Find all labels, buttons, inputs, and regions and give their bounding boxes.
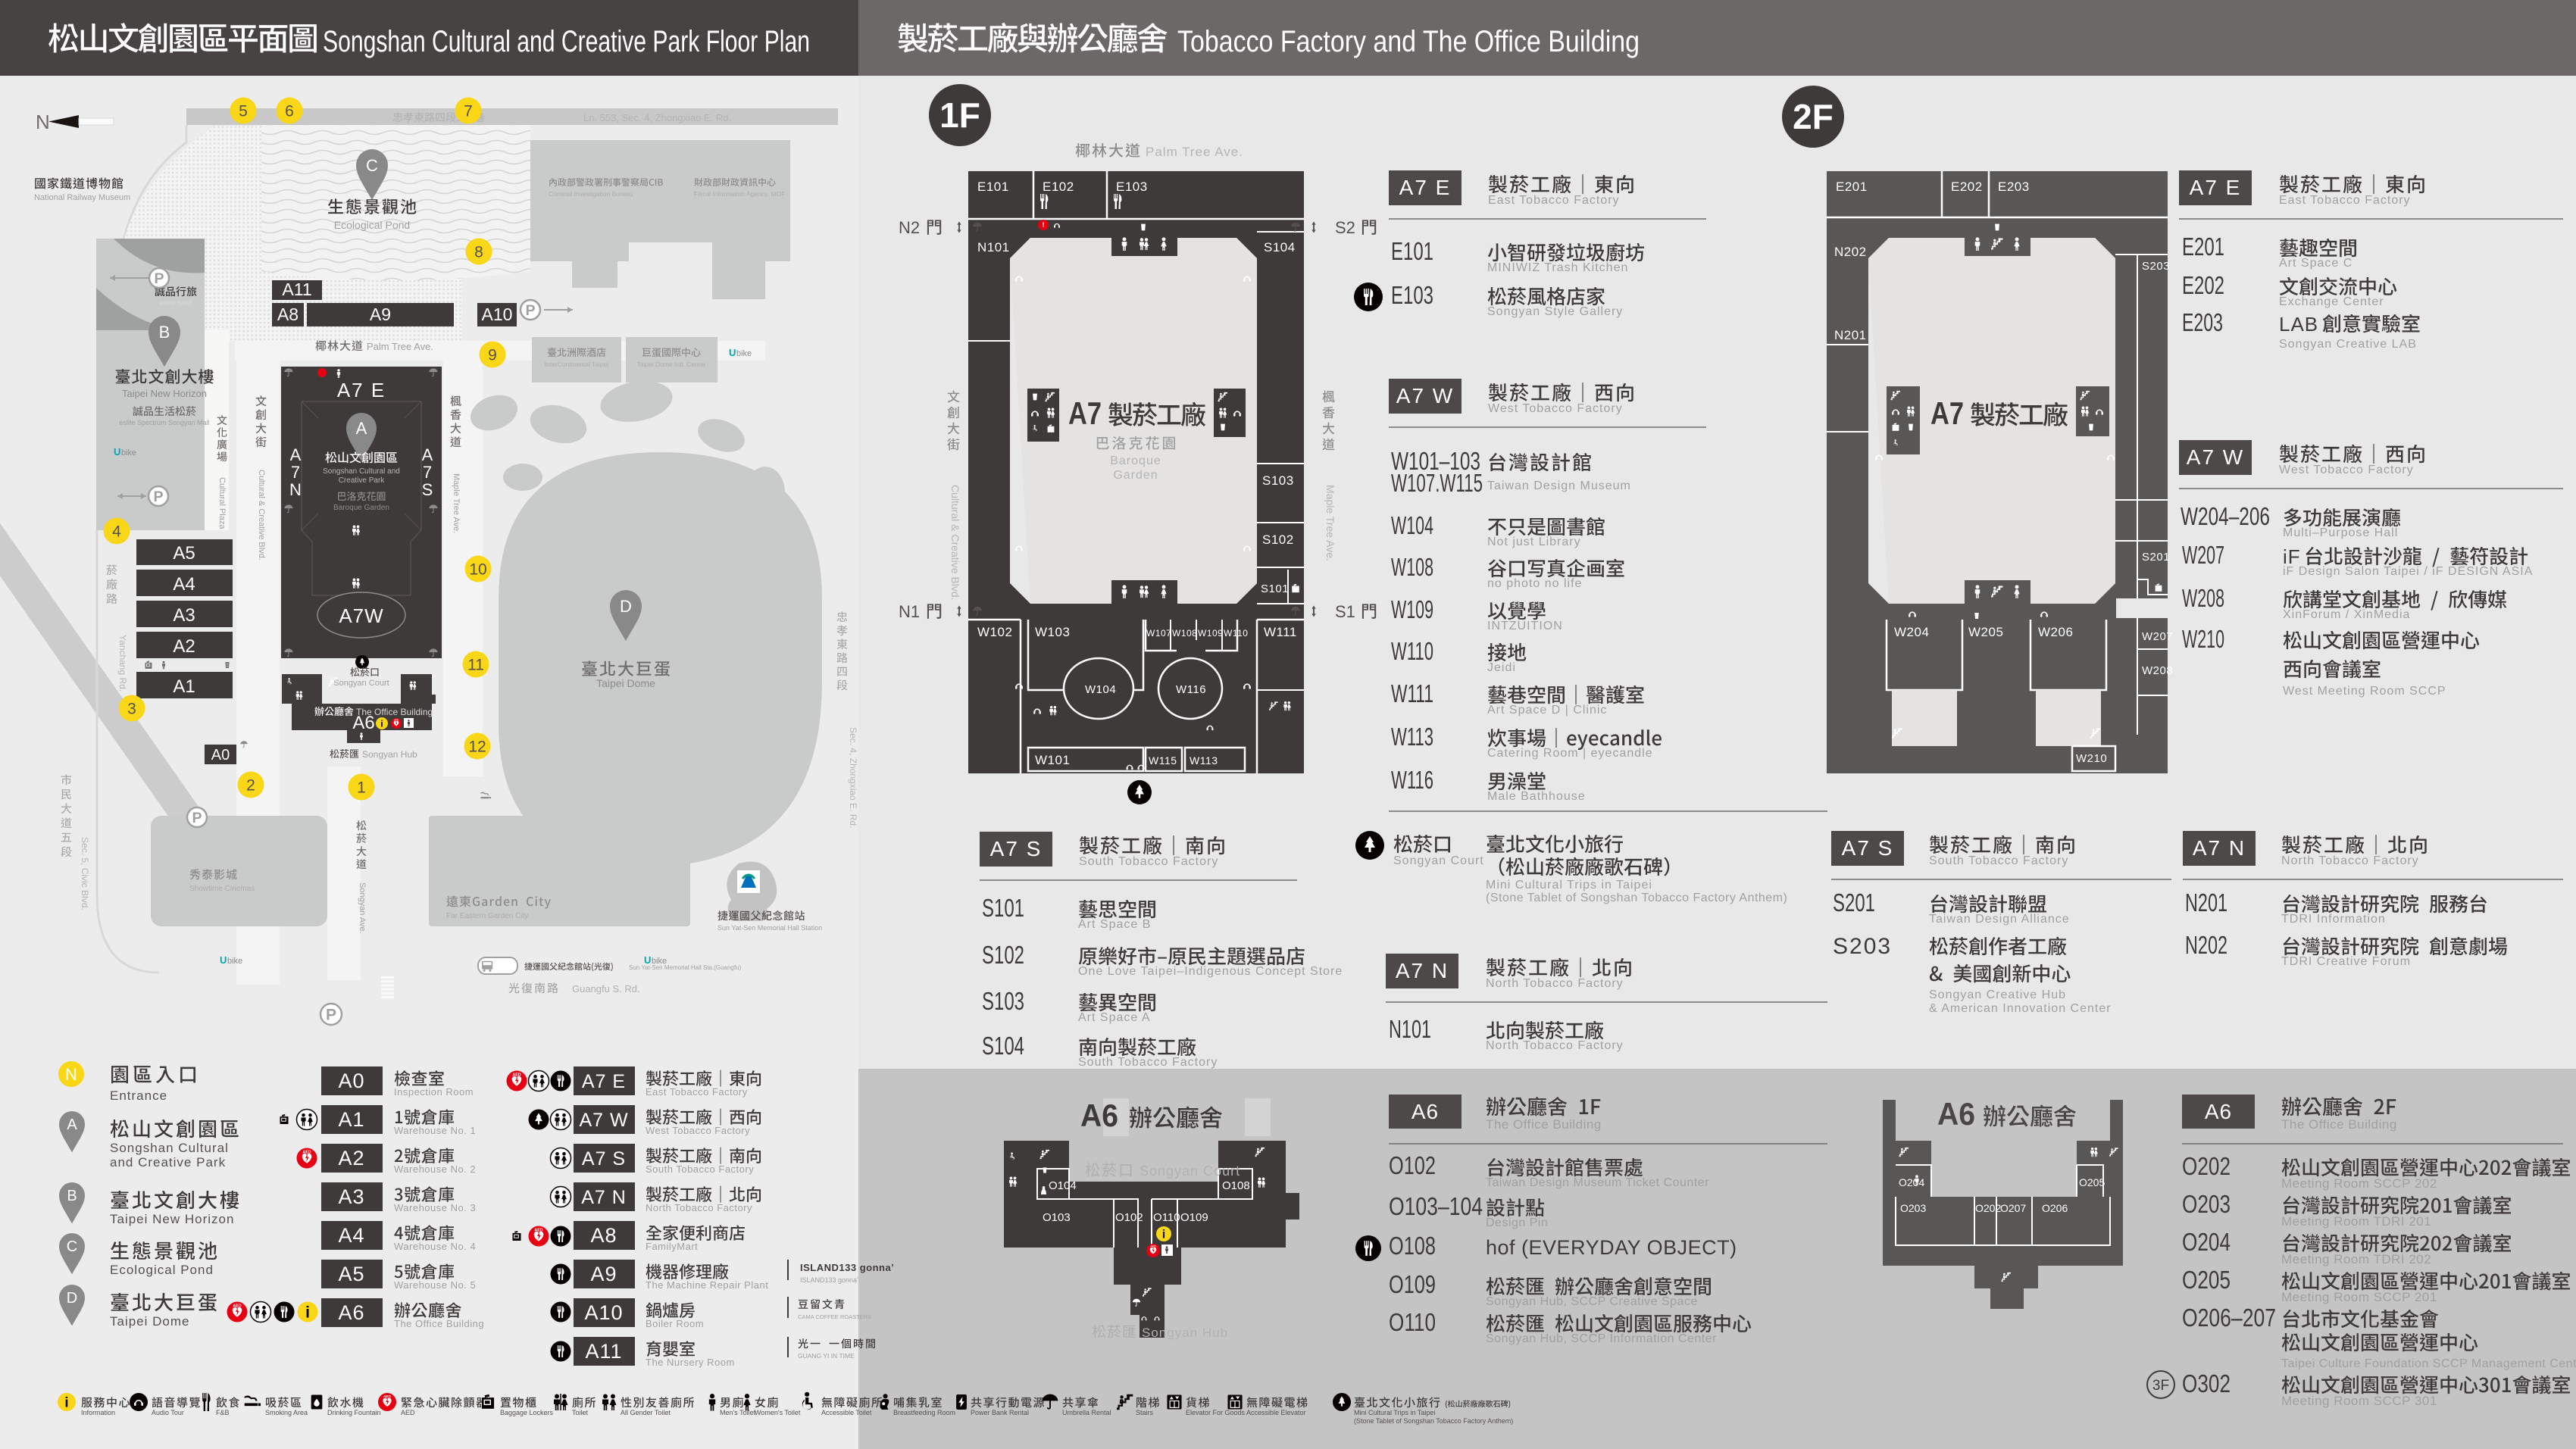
svg-text:S2: S2: [1335, 218, 1355, 237]
svg-text:Multi–Purpose Hall: Multi–Purpose Hall: [2283, 526, 2398, 539]
svg-text:Ln. 553, Sec. 4, Zhongxiao E.: Ln. 553, Sec. 4, Zhongxiao E. Rd.: [583, 112, 731, 123]
svg-text:E202: E202: [2182, 271, 2224, 299]
svg-text:& American Innovation Center: & American Innovation Center: [1929, 1002, 2112, 1015]
svg-text:W109: W109: [1391, 595, 1433, 623]
svg-text:W207: W207: [2182, 541, 2224, 569]
svg-text:Meeting Room SCCP 301: Meeting Room SCCP 301: [2281, 1394, 2437, 1408]
svg-text:8: 8: [474, 244, 483, 261]
svg-text:9: 9: [488, 347, 497, 364]
svg-text:Sec. 5, Civic Blvd.: Sec. 5, Civic Blvd.: [80, 837, 90, 910]
svg-text:Maple Tree Ave.: Maple Tree Ave.: [1324, 485, 1336, 561]
svg-text:U: U: [220, 954, 227, 966]
svg-text:Taipei New Horizon: Taipei New Horizon: [110, 1212, 234, 1226]
svg-text:6: 6: [285, 103, 294, 120]
svg-text:ISLAND133 gonnaʼ: ISLAND133 gonnaʼ: [800, 1262, 894, 1273]
svg-text:Songyan Hub, SCCP Information: Songyan Hub, SCCP Information Center: [1486, 1332, 1717, 1345]
svg-text:1F: 1F: [939, 95, 980, 135]
svg-text:W204–206: W204–206: [2181, 502, 2270, 530]
svg-text:E203: E203: [1998, 180, 2030, 194]
svg-text:E203: E203: [2182, 308, 2223, 336]
svg-text:Taipei Dome: Taipei Dome: [596, 677, 655, 689]
svg-text:(Stone Tablet of Songshan Toba: (Stone Tablet of Songshan Tobacco Factor…: [1354, 1417, 1513, 1425]
svg-text:Songyan Creative LAB: Songyan Creative LAB: [2279, 338, 2417, 351]
svg-text:All Gender Toilet: All Gender Toilet: [621, 1409, 671, 1416]
svg-text:ISLAND133 gonnaʼ: ISLAND133 gonnaʼ: [800, 1276, 858, 1284]
svg-text:Cultural & Creative Blvd.: Cultural & Creative Blvd.: [257, 470, 266, 561]
svg-text:Criminal Investigation Bureau: Criminal Investigation Bureau: [549, 190, 633, 198]
svg-text:Mini Cultural Trips in Taipei: Mini Cultural Trips in Taipei: [1486, 879, 1652, 892]
svg-text:O104: O104: [1049, 1179, 1077, 1192]
svg-text:O203: O203: [1900, 1202, 1926, 1214]
svg-text:W108: W108: [1391, 553, 1433, 581]
svg-text:W109: W109: [1198, 628, 1223, 639]
svg-text:A9: A9: [590, 1263, 617, 1285]
svg-text:Songshan Cultural and Creative: Songshan Cultural and Creative Park Floo…: [323, 25, 810, 58]
svg-text:South Tobacco Factory: South Tobacco Factory: [646, 1163, 754, 1175]
svg-text:W102: W102: [977, 625, 1012, 639]
svg-text:AED: AED: [383, 1394, 392, 1399]
svg-text:eslite Spectrum Songyan Mall: eslite Spectrum Songyan Mall: [119, 419, 209, 426]
svg-text:12: 12: [468, 739, 486, 756]
svg-text:Warehouse No. 4: Warehouse No. 4: [394, 1241, 476, 1252]
svg-text:O202: O202: [1975, 1202, 2001, 1214]
svg-text:B: B: [67, 1188, 77, 1204]
svg-text:Songyan Creative Hub: Songyan Creative Hub: [1929, 988, 2066, 1001]
svg-text:A5: A5: [173, 543, 195, 564]
svg-text:i: i: [305, 1304, 310, 1321]
svg-text:Breastfeeding Room: Breastfeeding Room: [893, 1409, 955, 1416]
svg-text:Warehouse No. 5: Warehouse No. 5: [394, 1279, 476, 1291]
svg-text:W113: W113: [1391, 723, 1433, 751]
svg-text:INTZUITION: INTZUITION: [1487, 620, 1563, 632]
svg-text:Guangfu S. Rd.: Guangfu S. Rd.: [572, 983, 640, 995]
svg-text:E103: E103: [1116, 180, 1148, 194]
svg-text:!: !: [1043, 221, 1045, 229]
svg-text:W107.W115: W107.W115: [1391, 469, 1483, 497]
svg-text:Creative Park: Creative Park: [339, 476, 386, 485]
svg-text:N101: N101: [1389, 1015, 1431, 1043]
svg-text:A8: A8: [590, 1224, 617, 1247]
svg-text:AED: AED: [401, 1409, 415, 1416]
svg-text:A7 W: A7 W: [2187, 445, 2244, 469]
svg-text:Yanchang Rd.: Yanchang Rd.: [117, 635, 128, 692]
svg-text:A: A: [290, 445, 302, 464]
svg-text:Toilet: Toilet: [572, 1409, 589, 1416]
svg-text:F&B: F&B: [216, 1409, 230, 1416]
svg-text:South Tobacco Factory: South Tobacco Factory: [1929, 854, 2068, 867]
svg-text:Men's Toilet: Men's Toilet: [720, 1409, 756, 1416]
svg-text:W103: W103: [1035, 625, 1070, 639]
svg-text:11: 11: [467, 657, 484, 674]
svg-text:iF Design Salon Taipei / iF DE: iF Design Salon Taipei / iF DESIGN ASIA: [2283, 565, 2533, 578]
svg-text:S101: S101: [1261, 582, 1289, 595]
svg-text:Taipei New Horizon: Taipei New Horizon: [122, 388, 207, 399]
svg-text:N202: N202: [2185, 931, 2227, 959]
svg-text:XinForum / XinMedia: XinForum / XinMedia: [2283, 608, 2410, 621]
svg-text:P: P: [326, 1006, 336, 1023]
svg-text:P: P: [153, 489, 163, 505]
svg-text:W108: W108: [1172, 628, 1197, 639]
svg-text:N202: N202: [1834, 245, 1867, 259]
svg-text:The Machine Repair Plant: The Machine Repair Plant: [646, 1279, 768, 1291]
svg-text:AED: AED: [302, 1150, 311, 1154]
svg-text:N201: N201: [2185, 888, 2227, 917]
svg-text:A: A: [356, 419, 367, 438]
svg-text:4: 4: [112, 523, 121, 541]
svg-text:Meeting Room SCCP 202: Meeting Room SCCP 202: [2281, 1176, 2437, 1191]
svg-text:LAB: LAB: [2279, 313, 2318, 336]
svg-text:A7 W: A7 W: [579, 1110, 628, 1131]
svg-text:E103: E103: [1391, 281, 1433, 309]
svg-text:S104: S104: [1264, 240, 1296, 255]
svg-text:Women's Toilet: Women's Toilet: [755, 1409, 801, 1416]
svg-text:O205: O205: [2182, 1266, 2231, 1294]
svg-text:Tobacco Factory and The Office: Tobacco Factory and The Office Building: [1177, 25, 1640, 58]
svg-text:W206: W206: [2038, 625, 2073, 639]
svg-text:Songyan Court: Songyan Court: [1140, 1163, 1240, 1179]
svg-text:Taipei Dome: Taipei Dome: [110, 1314, 190, 1329]
svg-text:O108: O108: [1222, 1179, 1250, 1192]
svg-text:E101: E101: [1391, 237, 1433, 265]
svg-text:Warehouse No. 1: Warehouse No. 1: [394, 1125, 476, 1136]
svg-text:Baroque: Baroque: [1110, 454, 1161, 467]
svg-text:A2: A2: [173, 636, 195, 657]
svg-text:North Tobacco Factory: North Tobacco Factory: [1486, 1039, 1624, 1052]
svg-text:InterContinental Taipei: InterContinental Taipei: [545, 361, 609, 368]
svg-text:A6: A6: [2205, 1100, 2232, 1123]
svg-text:W101: W101: [1035, 753, 1070, 767]
svg-text:O102: O102: [1115, 1211, 1143, 1224]
svg-text:W210: W210: [2076, 752, 2107, 765]
svg-text:TDRI Information: TDRI Information: [2281, 913, 2386, 926]
svg-text:O207: O207: [2000, 1202, 2026, 1214]
svg-text:Meeting Room TDRI 202: Meeting Room TDRI 202: [2281, 1252, 2431, 1266]
svg-text:10: 10: [469, 561, 486, 579]
svg-text:O109: O109: [1389, 1270, 1436, 1298]
svg-text:Taipei Dome Intl. Center: Taipei Dome Intl. Center: [636, 361, 705, 368]
svg-text:Sec. 4, Zhongxiao E. Rd.: Sec. 4, Zhongxiao E. Rd.: [848, 727, 858, 828]
svg-text:S203: S203: [2142, 260, 2170, 273]
svg-text:Taiwan Design Alliance: Taiwan Design Alliance: [1929, 913, 2070, 926]
svg-text:A7 S: A7 S: [1842, 836, 1894, 860]
svg-text:A0: A0: [211, 747, 230, 764]
svg-text:A3: A3: [173, 605, 195, 626]
svg-text:no photo no life: no photo no life: [1487, 577, 1582, 590]
svg-text:Garden: Garden: [1113, 469, 1158, 482]
svg-text:E201: E201: [1836, 180, 1868, 194]
svg-text:W208: W208: [2182, 584, 2224, 612]
svg-text:A11: A11: [282, 279, 311, 299]
svg-text:E102: E102: [1043, 180, 1074, 194]
svg-text:The Office Building: The Office Building: [2281, 1117, 2397, 1132]
svg-text:S102: S102: [982, 941, 1024, 969]
svg-text:Songyan Hub: Songyan Hub: [1142, 1326, 1228, 1340]
svg-text:A10: A10: [584, 1301, 623, 1324]
svg-text:AED: AED: [233, 1304, 241, 1308]
svg-text:O202: O202: [2182, 1152, 2231, 1180]
svg-text:A7 E: A7 E: [2190, 176, 2242, 199]
svg-text:W110: W110: [1224, 628, 1248, 639]
svg-text:hof (EVERYDAY OBJECT): hof (EVERYDAY OBJECT): [1486, 1236, 1737, 1259]
svg-text:A7 N: A7 N: [2193, 836, 2246, 860]
svg-text:Far Eastern Garden City: Far Eastern Garden City: [446, 912, 528, 920]
svg-text:U: U: [644, 954, 651, 966]
svg-text:P: P: [525, 302, 535, 319]
svg-text:West Tobacco Factory: West Tobacco Factory: [1488, 402, 1623, 415]
svg-text:Taiwan Design Museum: Taiwan Design Museum: [1487, 479, 1631, 492]
svg-text:West Meeting Room SCCP: West Meeting Room SCCP: [2283, 685, 2446, 698]
svg-text:The Nursery Room: The Nursery Room: [646, 1357, 735, 1368]
svg-text:Boiler Room: Boiler Room: [646, 1318, 704, 1329]
svg-text:Elevator For Goods: Elevator For Goods: [1186, 1409, 1246, 1416]
svg-text:i: i: [380, 718, 383, 729]
svg-text:A7 S: A7 S: [990, 837, 1043, 860]
svg-text:eslite hotel: eslite hotel: [159, 299, 192, 307]
svg-text:Taipei Culture Foundation SCCP: Taipei Culture Foundation SCCP Managemen…: [2281, 1357, 2576, 1370]
svg-text:S103: S103: [1262, 473, 1294, 488]
svg-text:1: 1: [357, 779, 366, 797]
svg-text:i: i: [64, 1394, 68, 1410]
svg-text:AED: AED: [394, 719, 399, 722]
svg-text:A: A: [422, 445, 433, 464]
svg-text:S201: S201: [2142, 551, 2170, 564]
svg-text:Mini Cultural Trips in Taipei: Mini Cultural Trips in Taipei: [1354, 1409, 1435, 1416]
svg-text:C: C: [67, 1238, 77, 1255]
svg-text:A6: A6: [338, 1301, 364, 1324]
svg-text:A7 S: A7 S: [582, 1148, 626, 1170]
svg-text:North Tobacco Factory: North Tobacco Factory: [1486, 977, 1624, 990]
svg-text:Stairs: Stairs: [1136, 1409, 1154, 1416]
svg-text:D: D: [620, 597, 632, 616]
svg-text:W205: W205: [1968, 625, 2003, 639]
svg-text:Palm Tree Ave.: Palm Tree Ave.: [367, 341, 433, 352]
svg-text:Showtime Cinemas: Showtime Cinemas: [189, 885, 255, 893]
svg-text:O203: O203: [2182, 1190, 2231, 1218]
svg-text:O108: O108: [1389, 1232, 1436, 1260]
svg-text:A7: A7: [1068, 395, 1102, 431]
svg-text:A7 N: A7 N: [581, 1187, 627, 1208]
svg-text:A: A: [67, 1116, 77, 1133]
svg-text:Catering Room | eyecandle: Catering Room | eyecandle: [1487, 747, 1653, 760]
svg-text:E201: E201: [2182, 233, 2224, 261]
svg-text:Art Space D | Clinic: Art Space D | Clinic: [1487, 704, 1607, 717]
svg-text:W208: W208: [2142, 664, 2173, 677]
svg-text:S: S: [422, 480, 433, 499]
svg-text:O302: O302: [2182, 1369, 2231, 1397]
svg-text:bike: bike: [652, 957, 667, 966]
svg-text:D: D: [67, 1290, 77, 1307]
svg-text:P: P: [154, 270, 164, 287]
svg-text:W104: W104: [1391, 511, 1433, 539]
svg-text:3: 3: [127, 701, 136, 718]
svg-text:W116: W116: [1391, 766, 1433, 794]
svg-text:A7 N: A7 N: [1396, 959, 1449, 982]
svg-text:AED: AED: [512, 1073, 521, 1077]
svg-text:A4: A4: [173, 574, 195, 595]
svg-text:FamilyMart: FamilyMart: [646, 1241, 698, 1252]
svg-text:W207: W207: [2142, 630, 2173, 643]
svg-text:S1: S1: [1335, 602, 1355, 621]
svg-text:The Office Building: The Office Building: [394, 1318, 484, 1329]
svg-text:A6: A6: [1080, 1098, 1118, 1133]
svg-text:U: U: [729, 347, 736, 358]
svg-text:7: 7: [423, 463, 432, 482]
svg-text:Exchange Center: Exchange Center: [2279, 295, 2384, 308]
svg-text:A11: A11: [585, 1340, 622, 1363]
svg-text:O102: O102: [1389, 1151, 1436, 1179]
svg-text:N101: N101: [977, 240, 1010, 255]
svg-text:P: P: [192, 810, 202, 826]
svg-text:A8: A8: [277, 304, 299, 324]
svg-text:A6: A6: [352, 713, 374, 733]
svg-text:Warehouse No. 3: Warehouse No. 3: [394, 1202, 476, 1213]
svg-text:South Tobacco Factory: South Tobacco Factory: [1079, 855, 1218, 868]
svg-text:A1: A1: [173, 676, 195, 697]
svg-text:A6: A6: [1937, 1096, 1975, 1132]
svg-text:bike: bike: [121, 448, 136, 457]
svg-text:Taiwan Design Museum Ticket Co: Taiwan Design Museum Ticket Counter: [1486, 1176, 1709, 1189]
svg-text:(Stone Tablet of Songshan Toba: (Stone Tablet of Songshan Tobacco Factor…: [1486, 892, 1787, 904]
svg-text:Umbrella Rental: Umbrella Rental: [1062, 1409, 1111, 1416]
svg-text:A7 W: A7 W: [1396, 384, 1454, 408]
svg-text:S103: S103: [982, 987, 1024, 1015]
svg-text:A7: A7: [1930, 395, 1964, 431]
svg-text:N: N: [289, 480, 302, 499]
svg-text:Audio Tour: Audio Tour: [152, 1409, 184, 1416]
svg-text:O103–104: O103–104: [1389, 1192, 1483, 1220]
svg-text:O205: O205: [2079, 1176, 2105, 1188]
svg-text:S203: S203: [1833, 934, 1892, 959]
svg-text:W115: W115: [1149, 754, 1177, 767]
svg-text:S101: S101: [982, 894, 1024, 922]
svg-text:Baggage Lockers: Baggage Lockers: [500, 1409, 554, 1416]
svg-text:National Railway Museum: National Railway Museum: [34, 193, 130, 202]
svg-text:Design Pin: Design Pin: [1486, 1216, 1548, 1229]
svg-text:B: B: [159, 323, 170, 342]
svg-text:W113: W113: [1190, 754, 1218, 767]
svg-text:O110: O110: [1153, 1211, 1180, 1224]
svg-text:Accessible Toilet: Accessible Toilet: [821, 1409, 872, 1416]
svg-text:West Tobacco Factory: West Tobacco Factory: [2279, 464, 2414, 476]
svg-text:Meeting Room TDRI 201: Meeting Room TDRI 201: [2281, 1214, 2431, 1229]
svg-text:O109: O109: [1180, 1211, 1208, 1224]
svg-text:N: N: [36, 111, 50, 133]
svg-text:A7 E: A7 E: [1399, 176, 1452, 199]
svg-text:A1: A1: [338, 1108, 364, 1131]
svg-text:A7 E: A7 E: [582, 1071, 626, 1092]
svg-text:7: 7: [291, 463, 300, 482]
svg-text:O206: O206: [2042, 1202, 2068, 1214]
svg-text:Jeidi: Jeidi: [1487, 661, 1516, 674]
svg-text:C: C: [366, 156, 378, 175]
svg-text:bike: bike: [736, 349, 752, 358]
svg-text:Songyan Court: Songyan Court: [1393, 854, 1484, 867]
svg-text:5: 5: [239, 103, 248, 120]
svg-text:E202: E202: [1951, 180, 1983, 194]
svg-text:Songyan Hub, SCCP Creative Spa: Songyan Hub, SCCP Creative Space: [1486, 1295, 1698, 1308]
svg-text:Palm Tree Ave.: Palm Tree Ave.: [1146, 145, 1243, 159]
svg-text:Inspection Room: Inspection Room: [394, 1086, 474, 1098]
svg-text:O204: O204: [1899, 1176, 1924, 1188]
svg-text:Accessible Elevator: Accessible Elevator: [1246, 1409, 1306, 1416]
svg-text:S201: S201: [1833, 888, 1875, 917]
svg-text:O103: O103: [1043, 1211, 1071, 1224]
svg-text:2F: 2F: [1793, 97, 1834, 136]
svg-text:W107: W107: [1146, 628, 1171, 639]
svg-text:East Tobacco Factory: East Tobacco Factory: [1488, 194, 1620, 207]
svg-text:Warehouse No. 2: Warehouse No. 2: [394, 1163, 476, 1175]
svg-text:and Creative Park: and Creative Park: [110, 1155, 226, 1170]
svg-text:N1: N1: [899, 602, 920, 621]
svg-text:S104: S104: [982, 1032, 1024, 1060]
svg-text:A9: A9: [370, 304, 391, 324]
svg-text:N201: N201: [1834, 328, 1867, 342]
svg-text:Entrance: Entrance: [110, 1088, 167, 1103]
svg-text:N: N: [65, 1065, 77, 1084]
svg-text:North Tobacco Factory: North Tobacco Factory: [646, 1202, 752, 1213]
svg-text:Cultural & Creative Blvd.: Cultural & Creative Blvd.: [949, 485, 961, 601]
svg-text:Power Bank Rental: Power Bank Rental: [971, 1409, 1029, 1416]
svg-text:W104: W104: [1085, 683, 1116, 696]
svg-text:A0: A0: [338, 1070, 364, 1092]
svg-text:Songyan Ave.: Songyan Ave.: [358, 882, 367, 934]
svg-text:Baroque Garden: Baroque Garden: [333, 504, 389, 512]
svg-text:Meeting Room SCCP 201: Meeting Room SCCP 201: [2281, 1290, 2437, 1304]
svg-text:Art Space B: Art Space B: [1078, 918, 1151, 931]
svg-text:A3: A3: [338, 1185, 364, 1208]
svg-text:Ecological Pond: Ecological Pond: [110, 1263, 214, 1277]
svg-text:A2: A2: [338, 1147, 364, 1170]
svg-text:West Tobacco Factory: West Tobacco Factory: [646, 1125, 750, 1136]
svg-text:Art Space C: Art Space C: [2279, 257, 2352, 270]
svg-text:Male Bathhouse: Male Bathhouse: [1487, 790, 1586, 803]
svg-text:A7W: A7W: [339, 604, 383, 627]
svg-text:Ecological Pond: Ecological Pond: [334, 219, 410, 231]
svg-text:2: 2: [246, 777, 255, 795]
svg-text:AED: AED: [1150, 1245, 1156, 1248]
svg-text:O206–207: O206–207: [2182, 1304, 2276, 1332]
svg-text:Fiscal Information Agency, MOF: Fiscal Information Agency, MOF: [694, 190, 785, 198]
svg-text:Cultural Plaza: Cultural Plaza: [217, 477, 227, 529]
svg-text:Not just Library: Not just Library: [1487, 536, 1581, 548]
svg-text:U: U: [114, 446, 120, 457]
svg-text:W111: W111: [1264, 625, 1297, 639]
svg-text:i: i: [1162, 1229, 1165, 1241]
svg-text:S102: S102: [1262, 532, 1294, 547]
svg-text:Smoking Area: Smoking Area: [265, 1409, 308, 1416]
svg-text:O204: O204: [2182, 1228, 2231, 1256]
svg-text:GUANG YI IN TIME: GUANG YI IN TIME: [798, 1352, 855, 1360]
svg-text:W110: W110: [1391, 637, 1433, 665]
svg-text:CAMA COFFEE ROASTERS: CAMA COFFEE ROASTERS: [798, 1313, 871, 1320]
svg-text:3F: 3F: [2152, 1378, 2169, 1394]
svg-text:Drinking Fountain: Drinking Fountain: [327, 1409, 381, 1416]
svg-text:W210: W210: [2182, 625, 2224, 653]
svg-text:AED: AED: [534, 1228, 542, 1232]
svg-text:W204: W204: [1894, 625, 1929, 639]
svg-text:bike: bike: [227, 957, 242, 966]
svg-text:Songyan Style Gallery: Songyan Style Gallery: [1487, 305, 1623, 318]
svg-text:MINIWIZ Trash Kitchen: MINIWIZ Trash Kitchen: [1487, 261, 1628, 274]
svg-text:South Tobacco Factory: South Tobacco Factory: [1078, 1056, 1218, 1069]
svg-text:A6: A6: [1411, 1100, 1439, 1123]
svg-text:A4: A4: [338, 1224, 364, 1247]
svg-text:Art Space A: Art Space A: [1078, 1011, 1151, 1024]
svg-text:Songyan Court: Songyan Court: [333, 679, 389, 688]
svg-text:A10: A10: [482, 304, 513, 324]
svg-text:Songshan Cultural: Songshan Cultural: [110, 1141, 229, 1155]
svg-text:Songyan Hub: Songyan Hub: [362, 749, 417, 760]
